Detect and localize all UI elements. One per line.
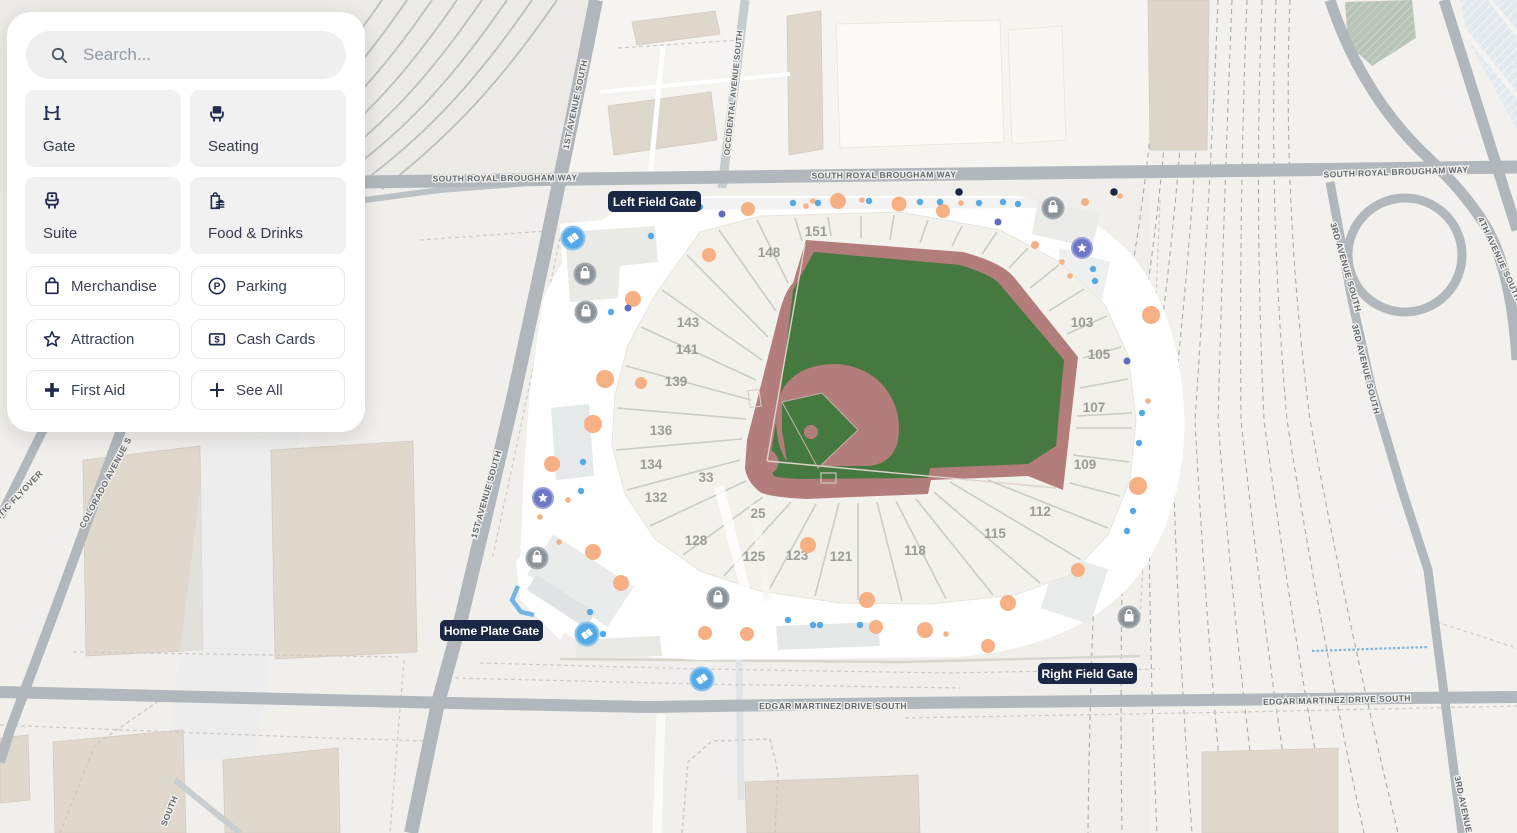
svg-text:25: 25 bbox=[750, 506, 766, 521]
svg-text:151: 151 bbox=[805, 224, 828, 239]
svg-text:103: 103 bbox=[1071, 315, 1094, 330]
svg-text:141: 141 bbox=[676, 342, 699, 357]
svg-text:143: 143 bbox=[677, 315, 700, 330]
svg-text:EDGAR MARTINEZ DRIVE SOUTH: EDGAR MARTINEZ DRIVE SOUTH bbox=[759, 701, 907, 711]
svg-text:115: 115 bbox=[984, 526, 1006, 541]
svg-text:118: 118 bbox=[904, 543, 926, 558]
svg-text:112: 112 bbox=[1029, 504, 1051, 519]
svg-text:121: 121 bbox=[830, 549, 853, 564]
svg-text:107: 107 bbox=[1083, 400, 1106, 415]
svg-text:P: P bbox=[214, 282, 221, 293]
svg-text:105: 105 bbox=[1088, 347, 1111, 362]
svg-text:Right Field Gate: Right Field Gate bbox=[1041, 667, 1133, 681]
svg-text:109: 109 bbox=[1074, 457, 1097, 472]
svg-text:139: 139 bbox=[665, 374, 688, 389]
svg-text:Left Field Gate: Left Field Gate bbox=[613, 195, 697, 209]
svg-text:134: 134 bbox=[640, 457, 663, 472]
svg-text:$: $ bbox=[214, 334, 220, 345]
svg-text:Home Plate Gate: Home Plate Gate bbox=[444, 624, 540, 638]
svg-text:125: 125 bbox=[743, 549, 766, 564]
svg-text:SOUTH ROYAL BROUGHAM WAY: SOUTH ROYAL BROUGHAM WAY bbox=[812, 169, 957, 180]
svg-text:136: 136 bbox=[650, 423, 673, 438]
svg-text:33: 33 bbox=[698, 470, 714, 485]
svg-text:SOUTH ROYAL BROUGHAM WAY: SOUTH ROYAL BROUGHAM WAY bbox=[433, 172, 578, 183]
svg-text:128: 128 bbox=[685, 533, 708, 548]
svg-text:148: 148 bbox=[758, 245, 781, 260]
svg-text:132: 132 bbox=[645, 490, 668, 505]
